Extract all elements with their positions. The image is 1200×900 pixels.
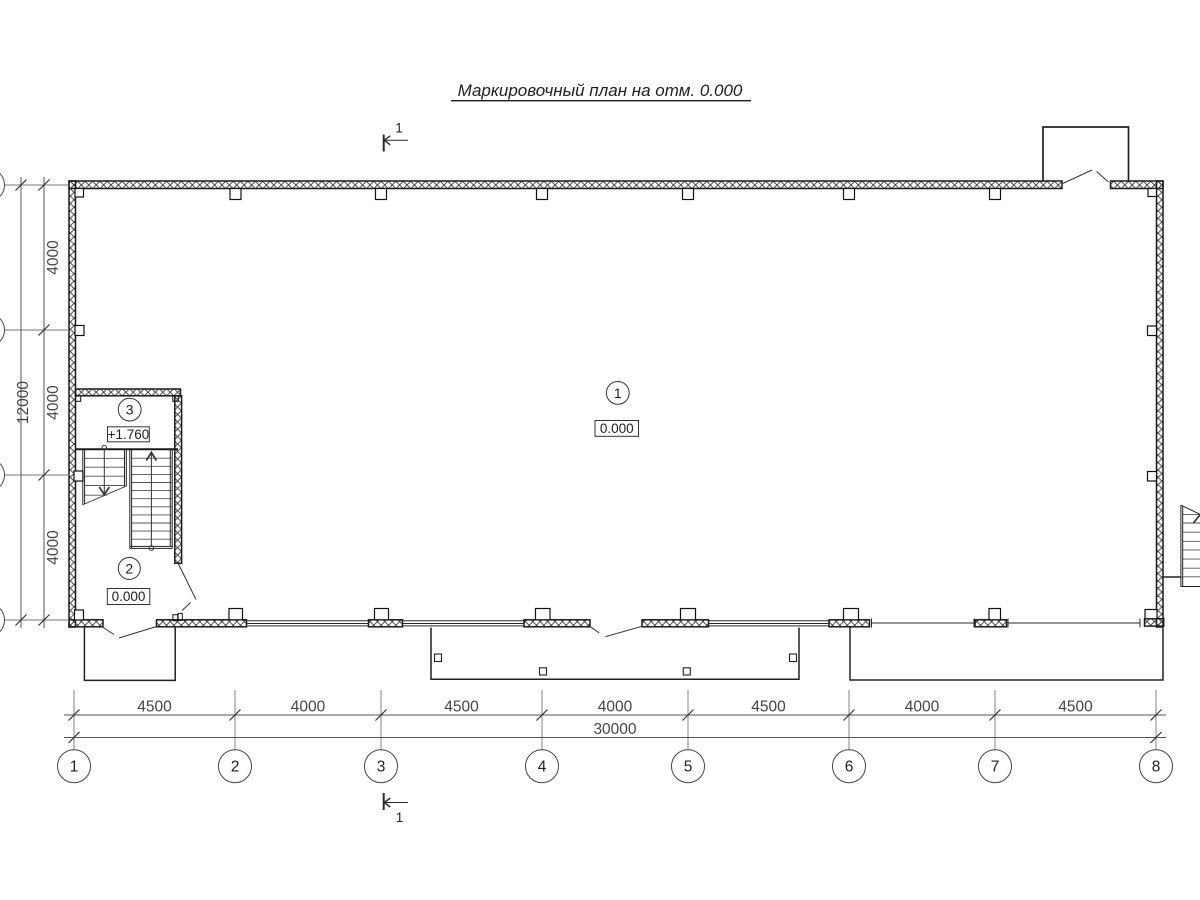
svg-text:5: 5 xyxy=(684,759,693,776)
svg-text:Маркировочный план на отм. 0.0: Маркировочный план на отм. 0.000 xyxy=(458,81,743,100)
svg-text:4: 4 xyxy=(538,759,547,776)
svg-text:0.000: 0.000 xyxy=(112,589,146,604)
svg-text:4000: 4000 xyxy=(45,530,62,565)
svg-text:12000: 12000 xyxy=(15,381,32,424)
svg-text:4000: 4000 xyxy=(598,699,633,716)
svg-text:4000: 4000 xyxy=(905,699,940,716)
svg-text:1: 1 xyxy=(396,810,404,825)
svg-text:4000: 4000 xyxy=(45,385,62,420)
svg-text:30000: 30000 xyxy=(593,721,636,738)
svg-text:8: 8 xyxy=(1152,759,1161,776)
svg-text:4500: 4500 xyxy=(751,699,786,716)
svg-text:7: 7 xyxy=(991,759,1000,776)
svg-text:3: 3 xyxy=(126,402,134,418)
svg-text:1: 1 xyxy=(70,759,79,776)
svg-text:3: 3 xyxy=(377,759,386,776)
svg-text:4500: 4500 xyxy=(1058,699,1093,716)
svg-text:4500: 4500 xyxy=(444,699,479,716)
svg-text:+1.760: +1.760 xyxy=(108,427,150,442)
svg-text:4000: 4000 xyxy=(291,699,326,716)
svg-text:6: 6 xyxy=(845,759,854,776)
svg-text:4500: 4500 xyxy=(137,699,172,716)
svg-text:2: 2 xyxy=(231,759,240,776)
svg-text:0.000: 0.000 xyxy=(600,421,634,436)
svg-text:4000: 4000 xyxy=(45,240,62,275)
svg-text:1: 1 xyxy=(395,121,403,136)
svg-text:1: 1 xyxy=(614,385,622,401)
svg-text:2: 2 xyxy=(125,561,133,577)
